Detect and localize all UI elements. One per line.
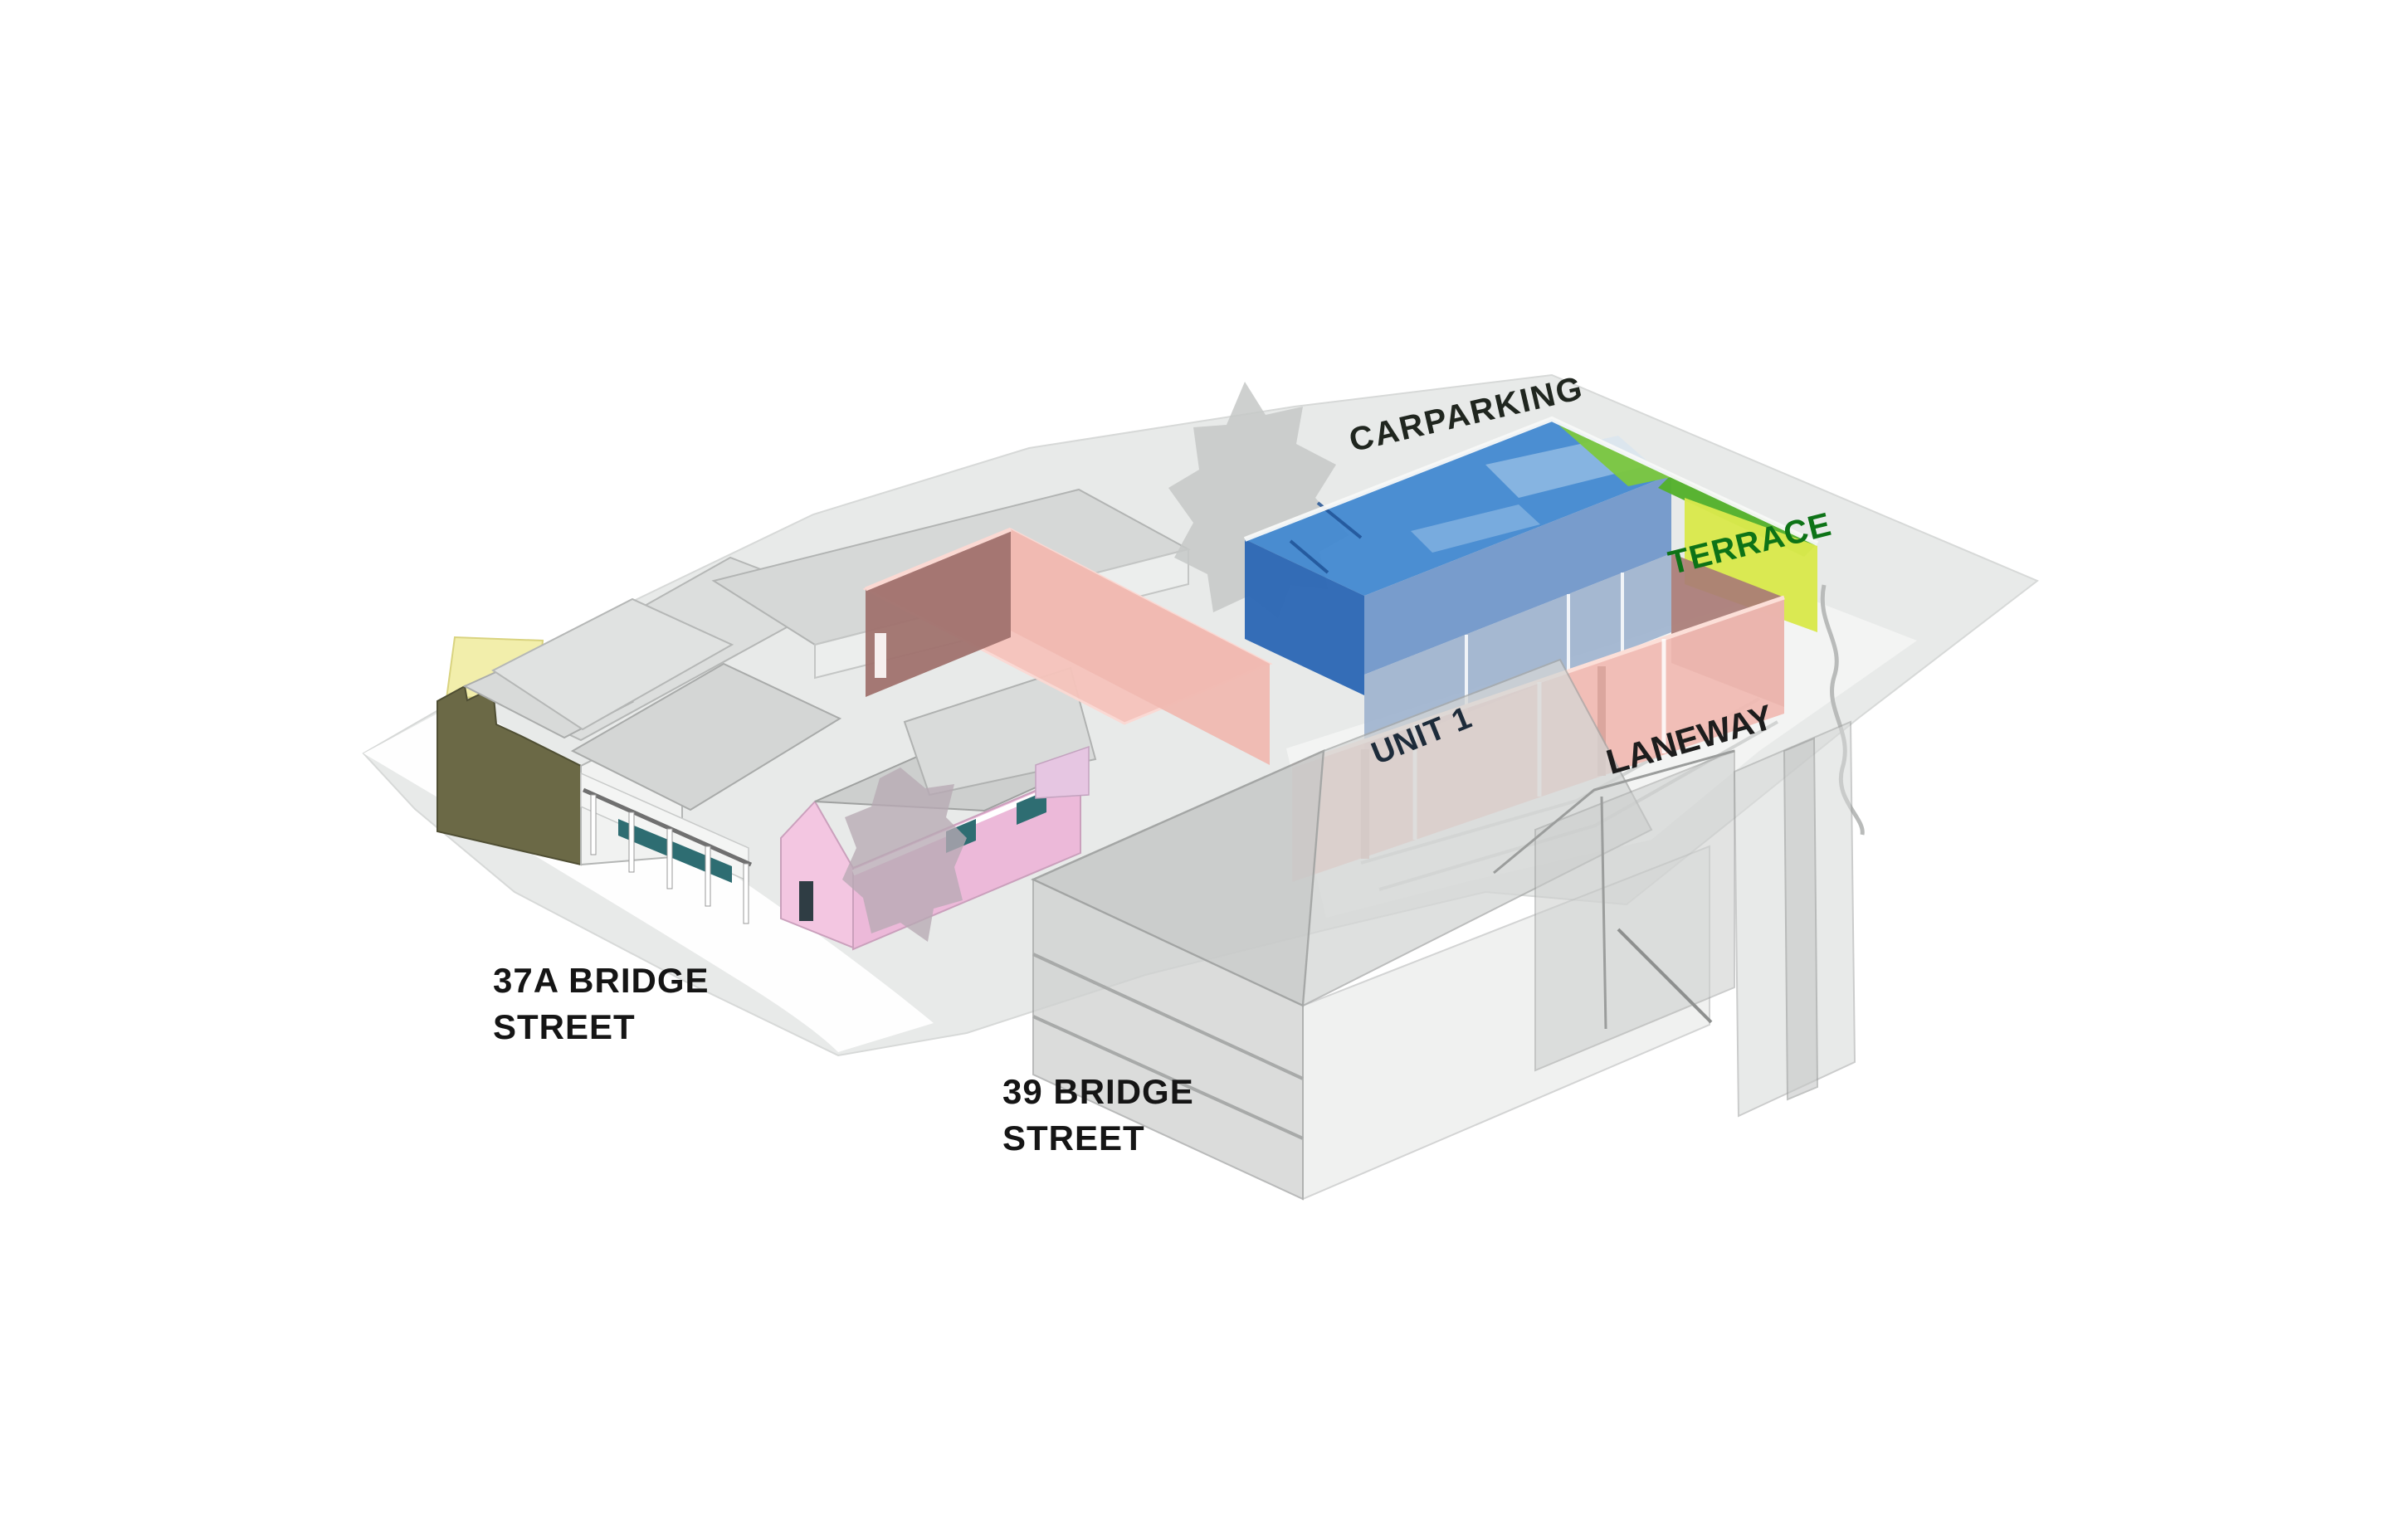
label-39-line2: STREET xyxy=(1002,1118,1145,1157)
label-37a-line1: 37A BRIDGE xyxy=(493,961,710,1000)
veranda-post xyxy=(744,864,749,924)
label-39-line1: 39 BRIDGE xyxy=(1002,1072,1194,1111)
site-diagram-page: CARPARKING TERRACE UNIT 1 LANEWAY 37A BR… xyxy=(0,0,2390,1540)
site-diagram: CARPARKING TERRACE UNIT 1 LANEWAY 37A BR… xyxy=(0,0,2390,1540)
wing-door-gap xyxy=(875,633,886,678)
pink-house-door xyxy=(799,881,813,921)
veranda-post xyxy=(667,829,672,889)
label-37a-line2: STREET xyxy=(493,1007,636,1046)
ghost-panel-2 xyxy=(1784,738,1817,1099)
veranda-post xyxy=(591,795,596,855)
veranda-post xyxy=(629,812,634,872)
veranda-post xyxy=(705,846,710,906)
